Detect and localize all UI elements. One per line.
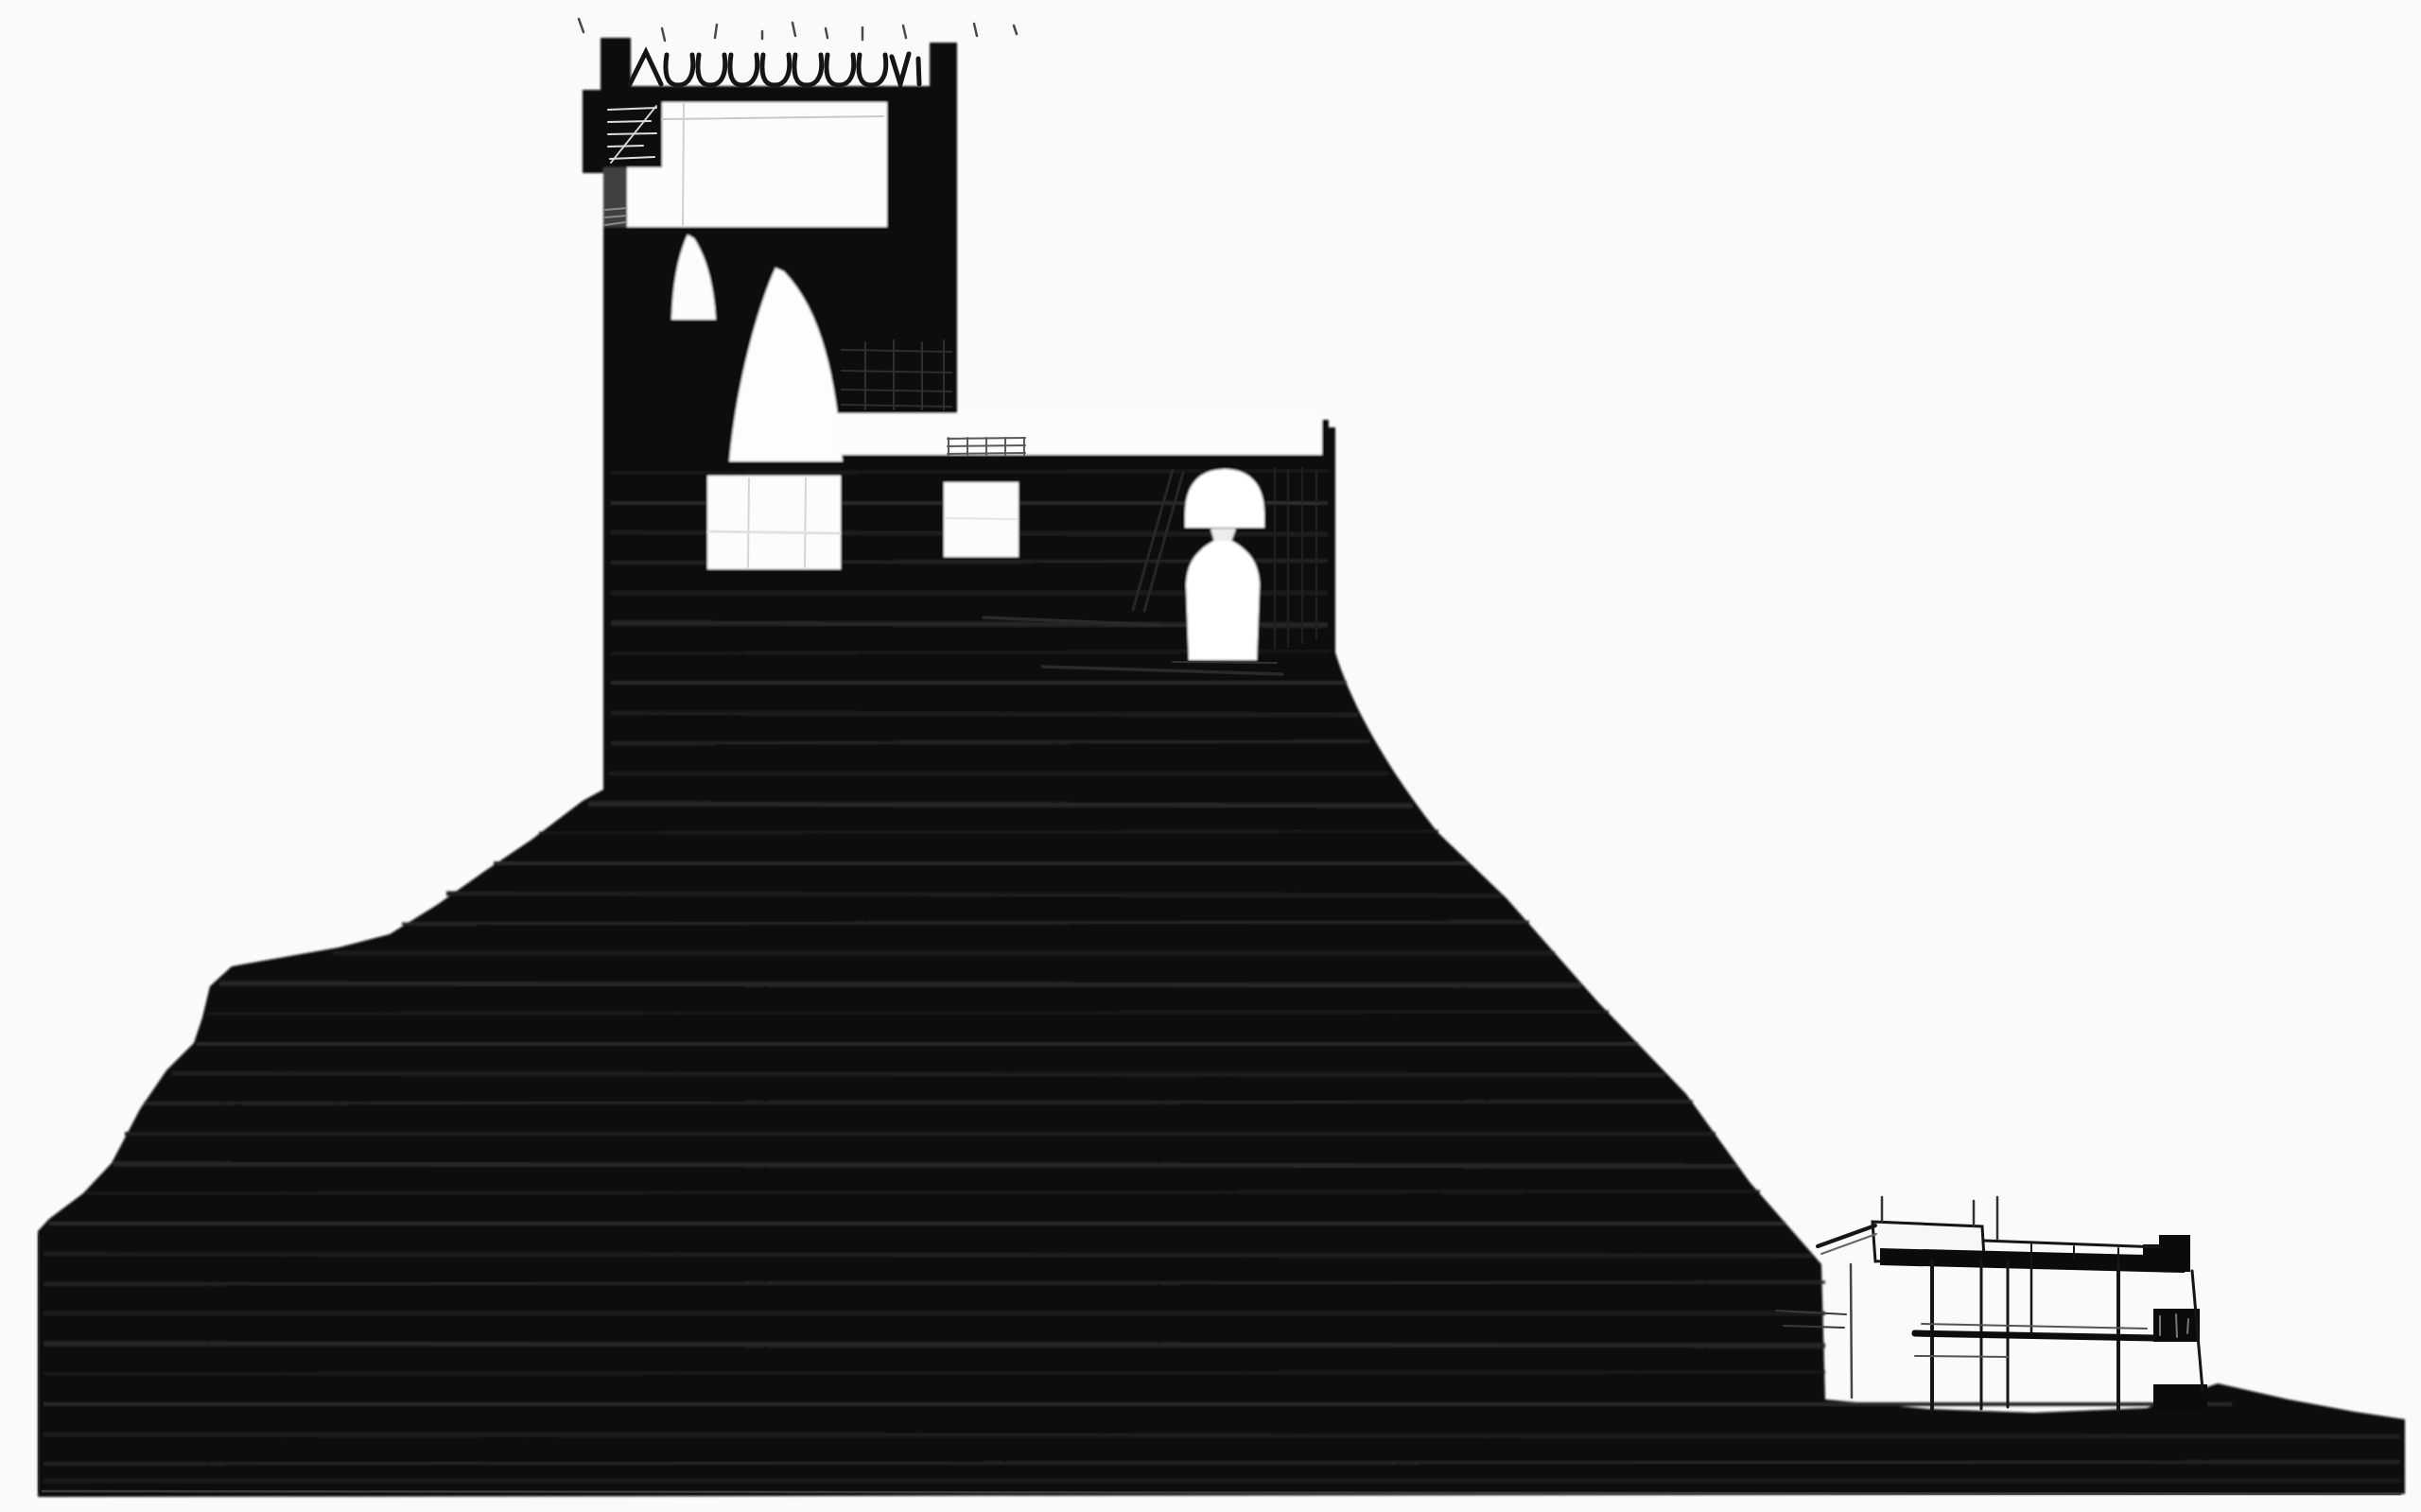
hill-stratum-line [44,1254,1812,1256]
crown-left-post [601,38,631,93]
sketch-stroke [748,478,749,567]
hill-stratum-line [44,1282,1825,1284]
sketch-stroke [946,518,1017,519]
terrace-sky-gap [837,413,1322,455]
sketch-stroke [1851,1264,1852,1398]
hill-stratum-line [44,1344,1825,1346]
crown-left-block [583,90,605,173]
sketch-stroke [1915,1356,2008,1357]
sketch-stroke [608,133,656,134]
hill-stratum-line [44,1462,2400,1464]
hill-stratum-line [402,922,1529,924]
sketch-stroke [708,531,840,533]
hill-stratum-line [44,1434,2400,1436]
sketch-stroke [2176,1314,2177,1337]
hill-stratum-line [113,1164,1737,1166]
pavilion-block-top-right [2159,1235,2190,1272]
hill-stratum-line [611,713,1358,715]
hill-stratum-line [219,983,1581,985]
crown-right-post [930,43,957,92]
silhouette-canvas [0,0,2421,1512]
hill-stratum-line [172,1073,1665,1075]
hill-stratum-line [208,1012,1609,1014]
architectural-sketch-figure [0,0,2421,1512]
hill-stratum-line [87,1191,1760,1193]
sketch-stroke [1915,1333,2154,1338]
sketch-stroke [1173,662,1277,663]
sketch-stroke [2187,1319,2188,1333]
hill-stratum-line [588,804,1413,806]
sketch-stroke [683,104,684,225]
sketch-stroke [805,478,806,567]
pavilion-block-bottom-right [2153,1384,2207,1408]
terrace-post-tip [1322,420,1329,428]
bell-niche [1186,541,1260,660]
hill-stratum-line [611,741,1369,743]
hill-stratum-line [44,1372,1825,1374]
hill-stratum-line [144,1102,1693,1104]
tower-room-opening [627,102,887,227]
hill-stratum-line [446,894,1502,895]
hill-stratum-line [539,831,1438,833]
window-lower-left [707,476,841,569]
